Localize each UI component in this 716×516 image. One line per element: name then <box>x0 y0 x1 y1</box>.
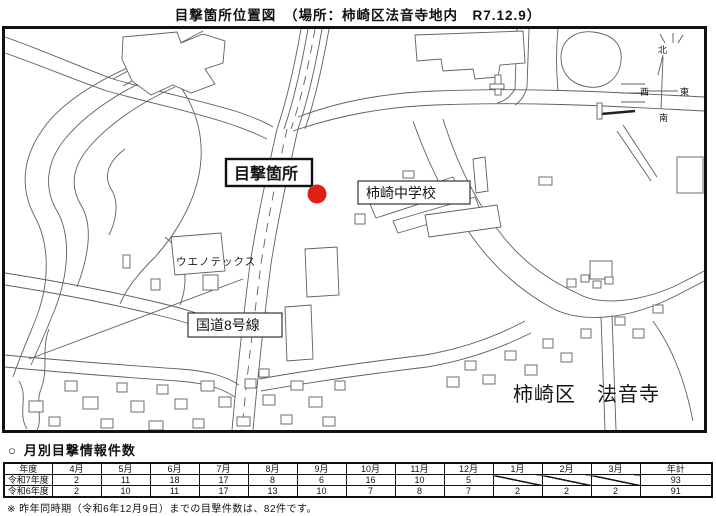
table-cell: 17 <box>199 475 248 486</box>
sighting-label-text: 目撃箇所 <box>234 164 298 183</box>
school-label-text: 柿崎中学校 <box>366 185 436 201</box>
table-cell: 8 <box>395 486 444 498</box>
table-row: 令和7年度 2 11 18 17 8 6 16 10 5 93 <box>4 475 712 486</box>
monthly-count-table: 年度 4月 5月 6月 7月 8月 9月 10月 11月 12月 1月 2月 3… <box>3 462 713 498</box>
table-cell-na <box>542 475 591 486</box>
table-cell: 17 <box>199 486 248 498</box>
col-header: 年度 <box>4 463 52 475</box>
table-cell: 16 <box>346 475 395 486</box>
table-cell: 2 <box>52 486 101 498</box>
col-header: 年計 <box>640 463 712 475</box>
table-cell: 2 <box>542 486 591 498</box>
row-label: 令和7年度 <box>4 475 52 486</box>
table-cell: 7 <box>444 486 493 498</box>
table-cell: 10 <box>101 486 150 498</box>
table-cell: 5 <box>444 475 493 486</box>
school-label: 柿崎中学校 <box>358 181 470 204</box>
row-label: 令和6年度 <box>4 486 52 498</box>
table-cell: 8 <box>248 475 297 486</box>
map: 北 西 東 南 ウエノテックス 柿崎区 法音寺 国道8号線 柿崎中学校 目撃箇所 <box>2 26 707 433</box>
roads <box>5 29 704 430</box>
table-cell: 6 <box>297 475 346 486</box>
table-cell: 2 <box>493 486 542 498</box>
compass-south: 南 <box>659 112 668 123</box>
table-cell: 2 <box>591 486 640 498</box>
section-title: 月別目撃情報件数 <box>24 443 136 458</box>
table-header-row: 年度 4月 5月 6月 7月 8月 9月 10月 11月 12月 1月 2月 3… <box>4 463 712 475</box>
col-header: 12月 <box>444 463 493 475</box>
col-header: 3月 <box>591 463 640 475</box>
table-cell: 13 <box>248 486 297 498</box>
col-header: 5月 <box>101 463 150 475</box>
table-cell: 10 <box>297 486 346 498</box>
col-header: 2月 <box>542 463 591 475</box>
table-cell: 7 <box>346 486 395 498</box>
compass-north: 北 <box>658 45 667 55</box>
table-cell: 2 <box>52 475 101 486</box>
uenotex-label: ウエノテックス <box>176 256 256 268</box>
table-row: 令和6年度 2 10 11 17 13 10 7 8 7 2 2 2 91 <box>4 486 712 498</box>
page: 目撃箇所位置図 （場所：柿崎区法音寺地内 R7.12.9） <box>0 0 716 516</box>
table-cell: 91 <box>640 486 712 498</box>
compass-west: 西 <box>640 87 649 97</box>
table-cell: 93 <box>640 475 712 486</box>
col-header: 9月 <box>297 463 346 475</box>
col-header: 10月 <box>346 463 395 475</box>
col-header: 11月 <box>395 463 444 475</box>
section-bullet: ○ <box>8 443 17 458</box>
sighting-label: 目撃箇所 <box>226 159 312 186</box>
sighting-marker <box>308 185 327 204</box>
col-header: 1月 <box>493 463 542 475</box>
page-title: 目撃箇所位置図 （場所：柿崎区法音寺地内 R7.12.9） <box>0 4 716 24</box>
compass-east: 東 <box>680 86 689 97</box>
route8-label: 国道8号線 <box>188 313 282 337</box>
table-cell-na <box>591 475 640 486</box>
col-header: 8月 <box>248 463 297 475</box>
district-label: 柿崎区 法音寺 <box>513 383 660 406</box>
table-cell-na <box>493 475 542 486</box>
footnote: ※ 昨年同時期（令和6年12月9日）までの目撃件数は、82件です。 <box>7 500 317 515</box>
route8-label-text: 国道8号線 <box>196 317 260 333</box>
section-heading: ○月別目撃情報件数 <box>8 440 136 459</box>
table-cell: 11 <box>101 475 150 486</box>
compass: 北 西 東 南 <box>640 45 689 123</box>
table-cell: 11 <box>150 486 199 498</box>
col-header: 4月 <box>52 463 101 475</box>
col-header: 6月 <box>150 463 199 475</box>
table-cell: 10 <box>395 475 444 486</box>
table-cell: 18 <box>150 475 199 486</box>
col-header: 7月 <box>199 463 248 475</box>
